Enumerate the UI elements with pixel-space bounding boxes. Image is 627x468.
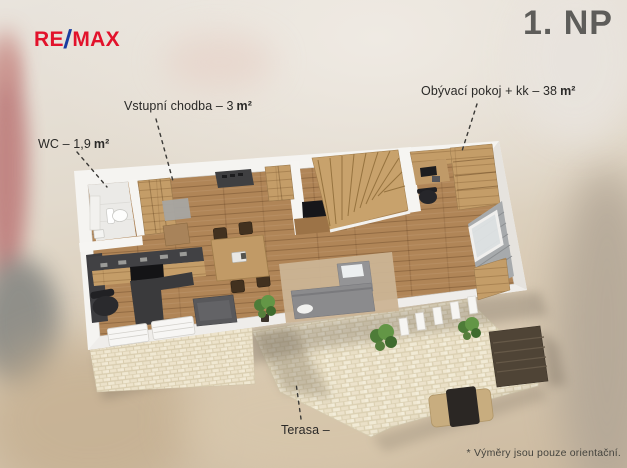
- room-label-wc-unit: m²: [94, 137, 109, 151]
- floorplan-image: RE/MAX 1. NP WC – 1,9m² Vstupní chodba –…: [0, 0, 627, 468]
- room-label-living-room-text: Obývací pokoj + kk – 38: [421, 84, 557, 98]
- floorplan-svg: [0, 0, 627, 468]
- room-label-entry-hall-text: Vstupní chodba – 3: [124, 99, 234, 113]
- wall-shelves: [450, 144, 500, 210]
- hall-cabinet: [265, 165, 294, 201]
- room-label-terrace: Terasa –: [281, 423, 333, 437]
- door-mat: [215, 169, 254, 188]
- armchair: [193, 295, 237, 326]
- remax-logo-max: MAX: [72, 28, 120, 51]
- room-label-entry-hall: Vstupní chodba – 3m²: [124, 99, 252, 113]
- remax-logo: RE/MAX: [34, 24, 120, 55]
- wc-shelf: [90, 196, 100, 230]
- hall-mat: [162, 198, 191, 221]
- room-label-entry-hall-unit: m²: [237, 99, 252, 113]
- wc-room: [88, 182, 136, 241]
- room-label-living-room: Obývací pokoj + kk – 38m²: [421, 84, 576, 98]
- disclaimer-note: * Výměry jsou pouze orientační.: [467, 447, 621, 459]
- room-label-terrace-text: Terasa –: [281, 423, 330, 437]
- room-label-living-room-unit: m²: [560, 84, 575, 98]
- pergola: [489, 326, 548, 387]
- room-label-wc-text: WC – 1,9: [38, 137, 91, 151]
- floor-title: 1. NP: [523, 4, 613, 43]
- wc-sink: [94, 229, 105, 238]
- remax-logo-re: RE: [34, 28, 64, 51]
- pantry-cabinet: [163, 223, 190, 246]
- room-label-wc: WC – 1,9m²: [38, 137, 109, 151]
